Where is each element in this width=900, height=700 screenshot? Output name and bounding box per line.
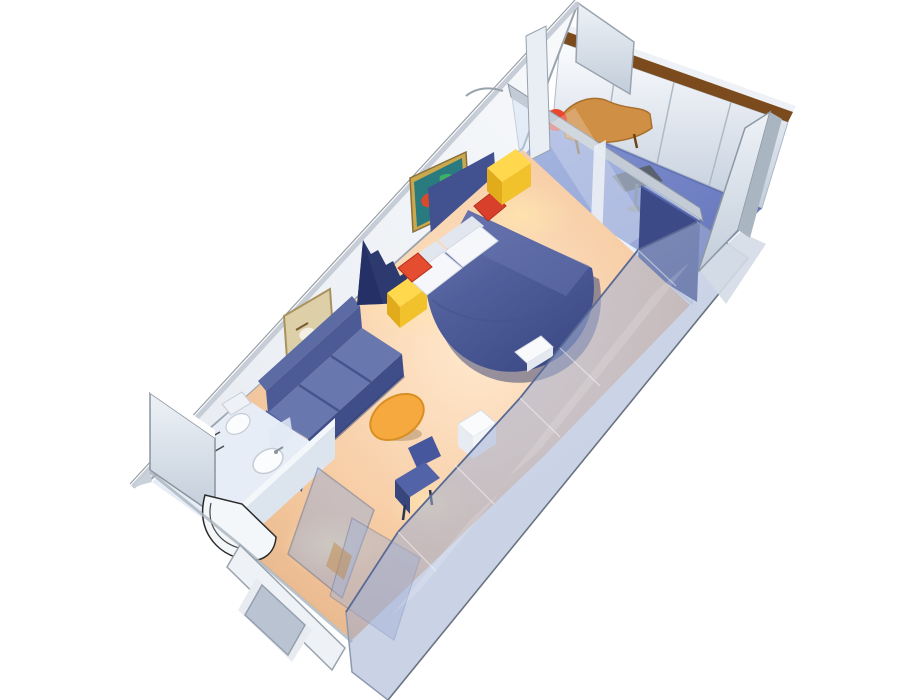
door-frame-left-post <box>526 26 550 160</box>
stateroom-3d-rendering <box>0 0 900 700</box>
stateroom-rendering-canvas <box>0 0 900 700</box>
faucet-base <box>274 450 278 454</box>
